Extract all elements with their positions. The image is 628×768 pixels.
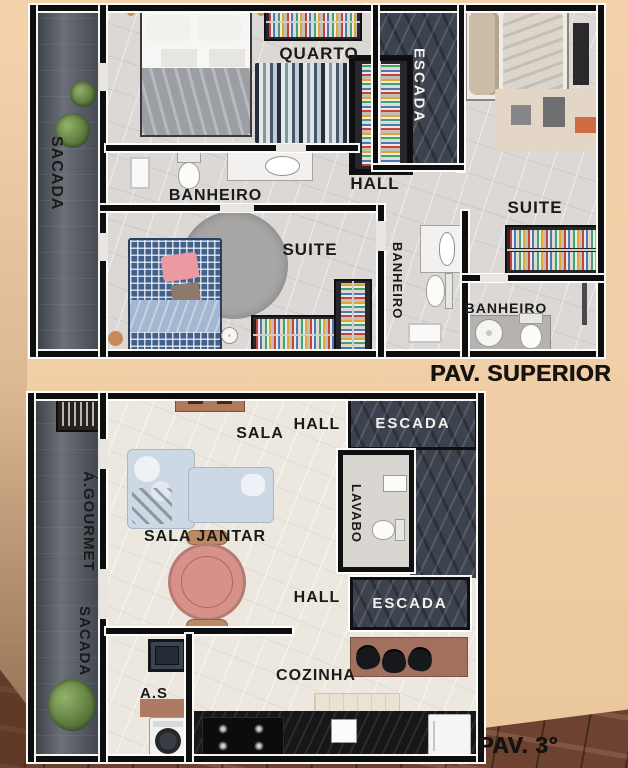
wardrobe-icon (336, 281, 370, 355)
wall (30, 5, 36, 357)
room-label-cozinha: COZINHA (266, 668, 366, 685)
wall (28, 756, 484, 762)
wall (28, 393, 34, 762)
room-label-banheiro: BANHEIRO (384, 231, 404, 331)
sink-icon (420, 225, 462, 273)
rug-icon (255, 63, 355, 143)
room-label-escada: ESCADA (375, 416, 450, 432)
toilet-icon (425, 270, 453, 312)
wardrobe-icon (253, 317, 339, 353)
sink-icon (383, 475, 407, 492)
sink-icon (227, 151, 313, 181)
shower-icon (130, 157, 150, 189)
double-bed-icon (140, 5, 252, 137)
stairwell: ESCADA (350, 577, 470, 630)
room-label-banheiro: BANHEIRO (158, 188, 273, 205)
double-bed-icon (465, 5, 569, 101)
toilet-icon (517, 313, 545, 351)
clothes-rack-row (256, 319, 337, 333)
wall (462, 211, 468, 357)
laundry-sink-icon (148, 639, 186, 672)
grill-icon (56, 396, 100, 432)
wall (100, 5, 106, 357)
single-bed-icon (128, 238, 222, 356)
stairwell: ESCADA (348, 397, 478, 450)
wardrobe-icon (351, 57, 411, 173)
wall (28, 393, 484, 399)
sofa-icon (188, 467, 274, 523)
clothes-rack-row (510, 230, 598, 248)
door-opening (98, 63, 108, 91)
lavabo-room: LAVABO (338, 450, 414, 572)
room-label-escada: ESCADA (372, 596, 447, 612)
room-label-hall: HALL (334, 175, 416, 193)
room-label-quarto: QUARTO (263, 45, 375, 63)
wall (598, 5, 604, 357)
wardrobe-icon (507, 227, 601, 273)
toilet-icon (371, 517, 405, 543)
door-opening (98, 439, 108, 469)
room-label-as: A.S (126, 686, 182, 702)
wall (30, 5, 604, 11)
room-label-suite: SUITE (271, 241, 349, 259)
shower-icon (408, 323, 442, 343)
sofa-icon (127, 449, 195, 529)
side-table-icon (221, 327, 238, 344)
wall (478, 393, 484, 762)
plan-superior: ESCADA (30, 5, 604, 357)
room-label-hall: HALL (288, 590, 346, 607)
caption-pav-terceiro: PAV. 3° (478, 732, 588, 759)
clothes-rack-row (256, 336, 337, 350)
wall (459, 5, 464, 171)
side-table-icon (108, 331, 123, 346)
wall (373, 165, 464, 170)
door-opening (220, 204, 254, 212)
room-label-sala-jantar: SALA JANTAR (144, 529, 266, 546)
chair-icon (382, 651, 406, 673)
door-opening (98, 233, 108, 261)
door-opening (98, 569, 108, 619)
room-label-sala: SALA (231, 426, 289, 443)
rug-icon (495, 89, 603, 151)
clothes-rack-column (341, 283, 365, 353)
wall (30, 351, 604, 357)
nightstand-icon (573, 23, 589, 85)
wall (106, 145, 358, 151)
stove-icon (202, 717, 284, 757)
sink-icon (331, 719, 357, 743)
shower-icon (582, 281, 587, 325)
door-opening (276, 144, 306, 152)
wall (186, 634, 192, 762)
washing-machine-icon (149, 717, 187, 760)
clothes-rack-row (510, 252, 598, 270)
clothes-rack-row (269, 23, 357, 37)
plant-icon (70, 81, 96, 107)
wall (373, 5, 378, 168)
room-label-banheiro: BANHEIRO (456, 301, 556, 316)
stairwell-floor (410, 450, 478, 578)
room-label-hall: HALL (288, 417, 346, 434)
plan-terceiro: ESCADA LAVABO ESCADA (28, 393, 484, 762)
room-label-sacada: SACADA (68, 591, 92, 691)
sink-icon (475, 319, 503, 347)
dining-table-icon (168, 543, 246, 621)
door-opening (480, 274, 508, 282)
fridge-icon (428, 714, 471, 759)
toilet-icon (175, 151, 203, 191)
sheet-edge-shadow (0, 0, 27, 768)
room-label-suite: SUITE (496, 199, 574, 217)
room-label-lavabo: LAVABO (345, 467, 363, 559)
kitchen-island-icon (314, 693, 400, 713)
wall (106, 628, 292, 634)
room-label-escada: ESCADA (411, 48, 427, 123)
room-label-gourmet: Á.GOURMET (72, 445, 96, 597)
room-label-sacada: SACADA (40, 121, 64, 225)
clothes-rack-column (362, 64, 399, 166)
caption-pav-superior: PAV. SUPERIOR (430, 360, 602, 387)
floor-plan-poster: ESCADA (0, 0, 628, 768)
